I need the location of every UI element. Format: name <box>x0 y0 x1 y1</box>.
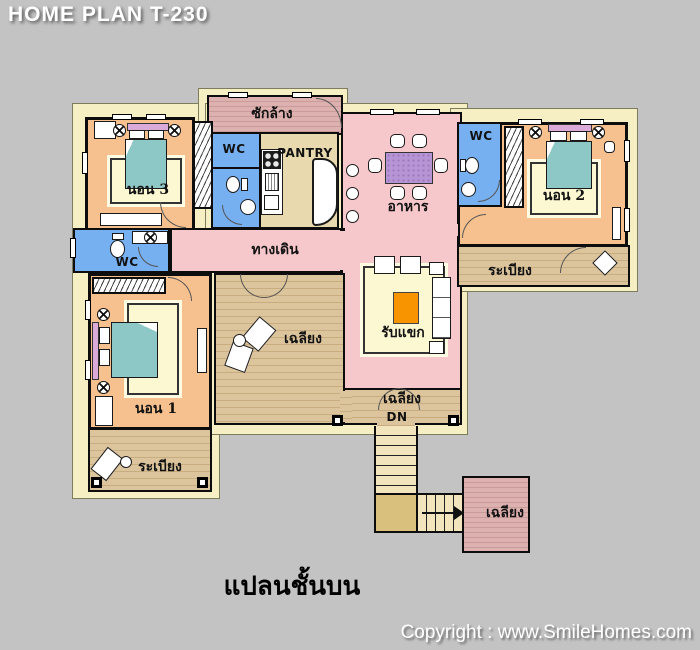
side-table <box>429 341 444 354</box>
room-bedroom-1-label: นอน 1 <box>135 398 177 420</box>
side-table <box>429 262 444 275</box>
room-balcony-left-label: ระเบียง <box>138 456 182 478</box>
bar-stool <box>346 187 359 200</box>
deck-post <box>448 415 459 426</box>
dining-chair <box>434 158 448 173</box>
window-mark <box>624 208 630 232</box>
plan-caption: แปลนชั้นบน <box>224 566 361 607</box>
dining-chair <box>390 134 405 148</box>
sofa <box>432 277 451 339</box>
copyright-text: Copyright : www.SmileHomes.com <box>401 622 692 644</box>
bar-stool <box>346 210 359 223</box>
window-mark <box>82 152 88 174</box>
room-bedroom-2-label: นอน 2 <box>543 185 585 207</box>
bed3-pillow <box>148 130 164 139</box>
ceiling-fan-icon <box>113 124 126 137</box>
window-mark <box>292 92 312 98</box>
page-title: HOME PLAN T-230 <box>8 3 209 27</box>
window-mark <box>70 238 76 258</box>
stairs-down-label: DN <box>386 410 407 424</box>
dresser-bedroom-3 <box>100 213 162 226</box>
room-balcony-right-label: ระเบียง <box>488 260 532 282</box>
ceiling-fan-icon <box>97 381 110 394</box>
deck-table <box>233 334 246 347</box>
floor-plan-canvas: HOME PLAN T-230 ซักล้าง นอน 3 WC PANTRY … <box>0 0 700 650</box>
window-mark <box>624 140 630 162</box>
ceiling-fan-icon <box>168 124 181 137</box>
bed1-headboard <box>92 322 99 380</box>
washbasin-icon <box>240 199 256 215</box>
window-mark <box>370 109 394 115</box>
dining-table <box>385 152 433 184</box>
kitchen-sink-icon <box>265 173 279 191</box>
ceiling-fan-icon <box>97 308 110 321</box>
bed2-pillow <box>570 131 587 141</box>
washbasin-icon <box>461 182 476 197</box>
room-wc-bed2-label: WC <box>469 129 492 143</box>
toilet-icon <box>226 176 240 193</box>
window-mark <box>112 114 132 120</box>
toilet-icon <box>465 157 479 174</box>
dresser-bedroom-2 <box>612 207 621 240</box>
deck-post <box>91 477 102 488</box>
bed3-pillow <box>129 130 145 139</box>
room-living-label: รับแขก <box>381 322 424 344</box>
toilet-tank <box>241 178 248 191</box>
stair-arrow-head <box>454 506 464 520</box>
window-mark <box>228 92 248 98</box>
bed2-pillow <box>550 131 567 141</box>
bed2-bed <box>546 141 592 189</box>
armchair <box>374 256 395 274</box>
window-mark <box>146 114 166 120</box>
wc-top-divider <box>213 167 259 169</box>
deck-post <box>197 477 208 488</box>
closet-bedroom-3 <box>193 121 213 209</box>
ceiling-fan-icon <box>592 126 605 139</box>
room-wc-left-label: WC <box>115 255 138 269</box>
armchair <box>400 256 421 274</box>
window-mark <box>518 119 542 125</box>
room-dining-label: อาหาร <box>388 196 429 218</box>
room-porch-rear-label: เฉลียง <box>383 388 421 410</box>
bar-stool <box>346 164 359 177</box>
kitchen-cabinet <box>264 195 279 210</box>
pink-join <box>337 231 349 270</box>
room-laundry-label: ซักล้าง <box>251 103 292 125</box>
stair-arrow-line <box>422 512 456 514</box>
room-porch-center-label: เฉลียง <box>284 328 322 350</box>
window-mark <box>580 119 604 125</box>
closet-bedroom-2 <box>504 126 524 208</box>
stairs-landing <box>374 493 418 533</box>
bar-counter <box>312 158 338 226</box>
room-corridor-label: ทางเดิน <box>251 239 298 261</box>
room-porch-stairs-label: เฉลียง <box>486 502 524 524</box>
deck-table <box>120 456 132 468</box>
room-bedroom-3-label: นอน 3 <box>127 179 169 201</box>
bed1-pillow <box>99 349 110 366</box>
coffee-table <box>393 292 419 324</box>
chair-bedroom-2 <box>604 141 615 153</box>
bed1-pillow <box>99 327 110 344</box>
bed1-bed <box>111 322 158 378</box>
ceiling-fan-icon <box>529 126 542 139</box>
pink-join <box>345 224 458 236</box>
sink-icon <box>144 231 157 244</box>
deck-post <box>332 415 343 426</box>
dining-chair <box>368 158 382 173</box>
closet-bedroom-1 <box>92 277 166 294</box>
room-pantry-label: PANTRY <box>277 146 332 160</box>
window-mark <box>416 109 440 115</box>
window-mark <box>85 360 91 380</box>
cabinet-bedroom-1 <box>95 396 113 426</box>
dresser-bedroom-1 <box>197 328 207 373</box>
toilet-tank <box>460 159 466 172</box>
room-wc-top-label: WC <box>222 142 245 156</box>
toilet-tank <box>112 233 124 240</box>
dining-chair <box>412 134 427 148</box>
window-mark <box>85 300 91 320</box>
stairs-upper-flight <box>374 426 418 495</box>
